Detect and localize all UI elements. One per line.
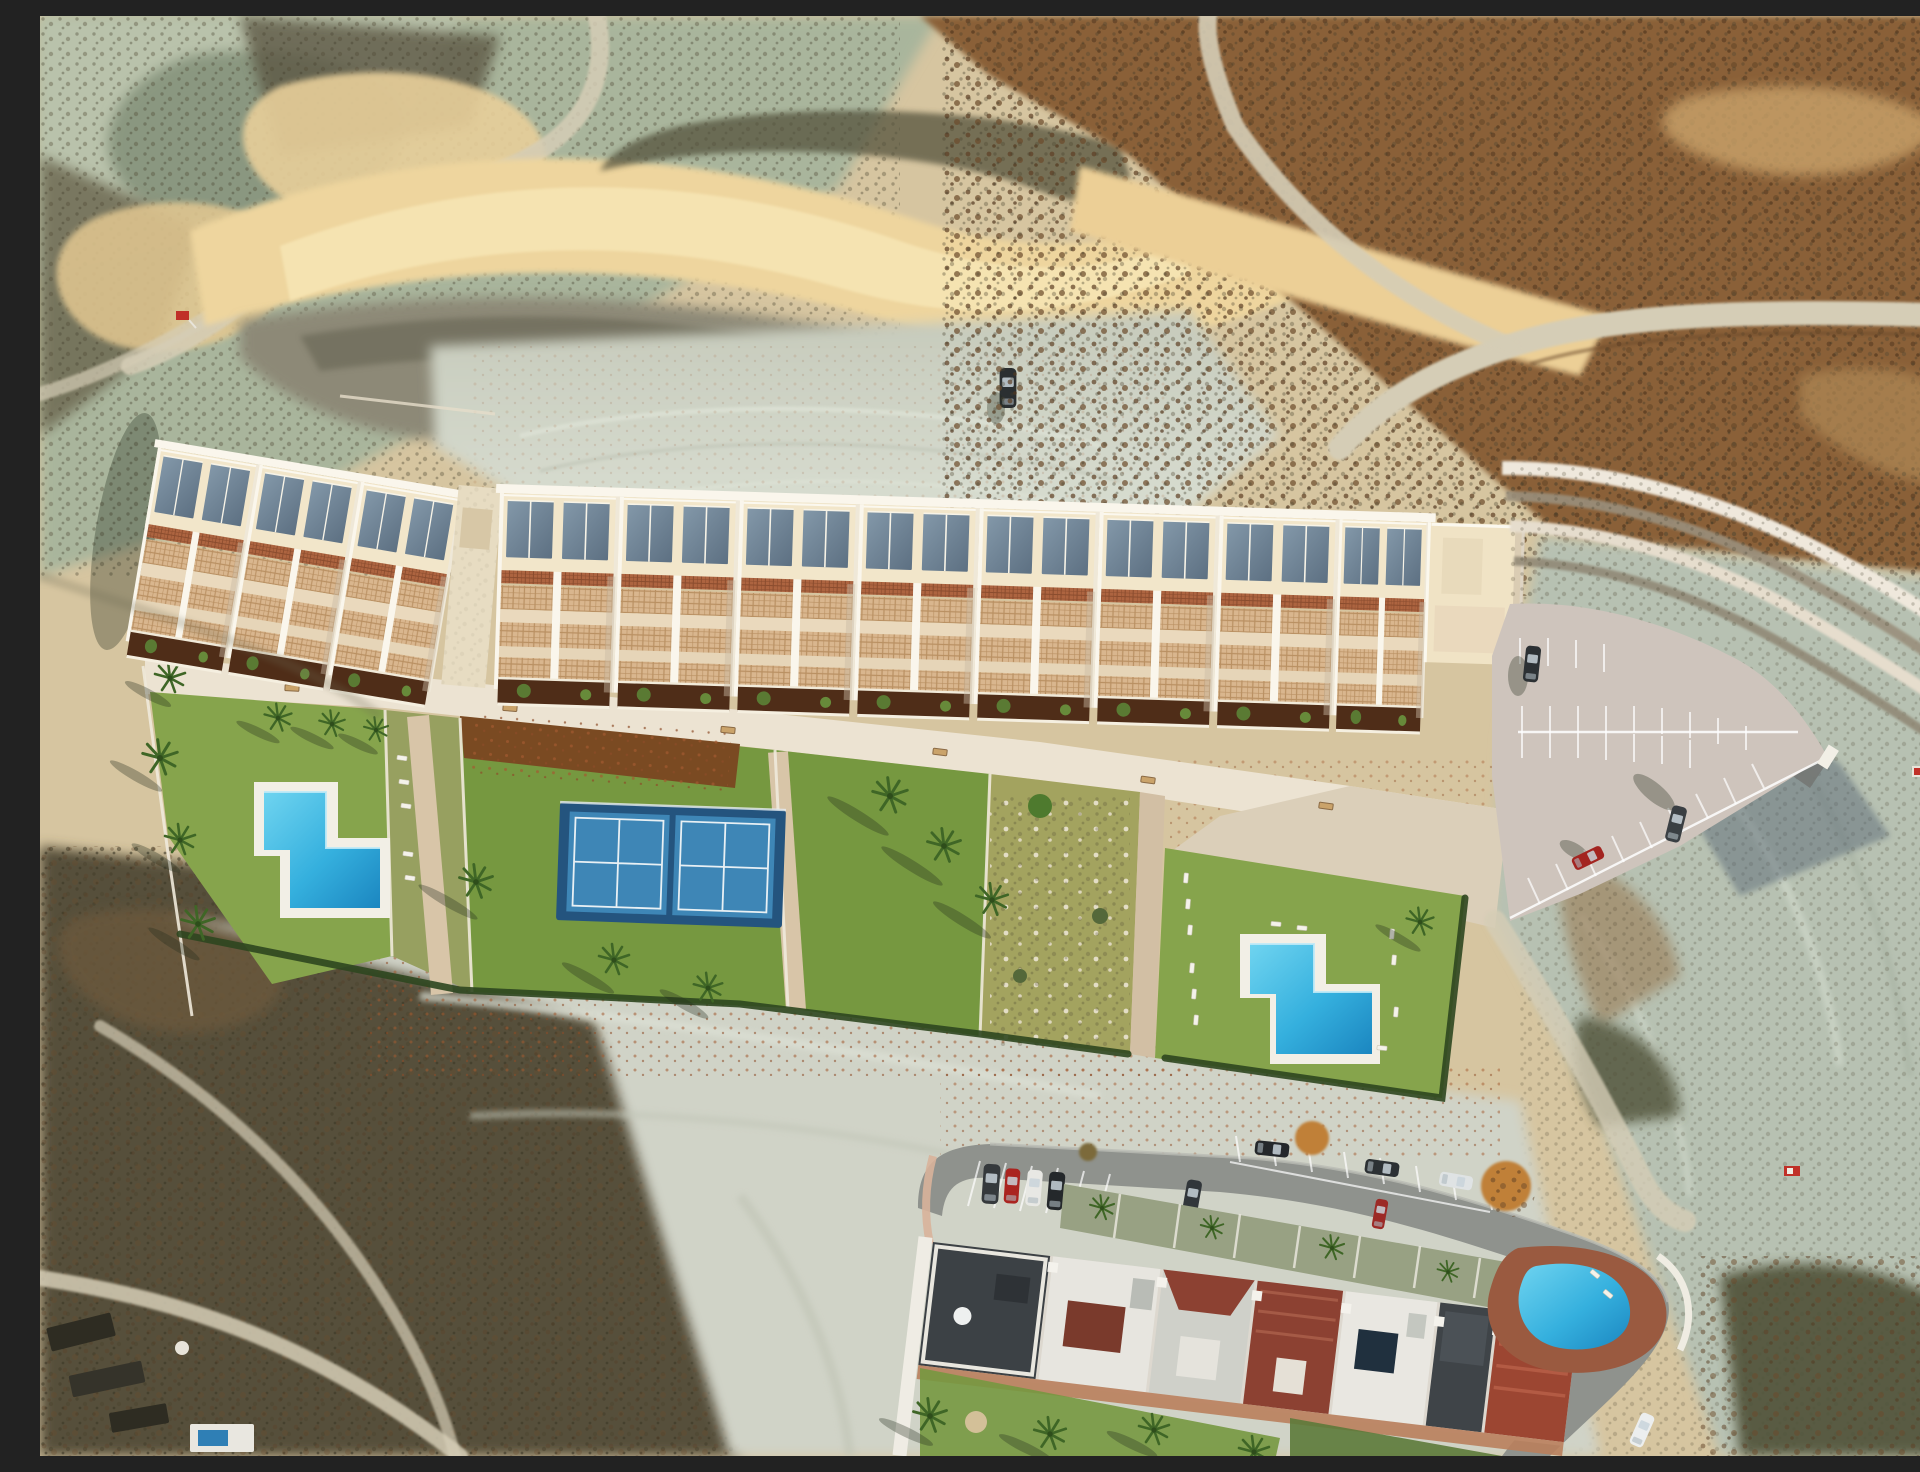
- solar-panel: [1354, 1329, 1398, 1373]
- sign-red: [1784, 1166, 1800, 1176]
- townhouse-module: [1213, 516, 1340, 731]
- townhouse-module: [1093, 512, 1220, 727]
- townhouse-module: [493, 493, 620, 708]
- bench: [1141, 776, 1156, 784]
- bench: [933, 748, 948, 756]
- townhouse-module: [1333, 519, 1430, 733]
- bench: [721, 726, 736, 733]
- townhouse-module: [973, 508, 1100, 723]
- bench: [1319, 802, 1334, 810]
- townhouse-module: [853, 504, 980, 719]
- sign-red: [1912, 766, 1920, 777]
- building-unit: [1038, 1256, 1160, 1392]
- parked-car: [1003, 1168, 1020, 1204]
- townhouse-main-row: [489, 484, 1525, 736]
- aerial-photo: Aerial render: white stepped townhouses …: [40, 16, 1920, 1456]
- building-unit: [918, 1242, 1050, 1379]
- parked-car: [1025, 1169, 1043, 1206]
- parked-car: [981, 1164, 1001, 1205]
- townhouse-module: [613, 497, 740, 712]
- townhouse-module: [733, 501, 860, 716]
- padel-courts: [556, 802, 786, 928]
- building-unit: [1149, 1269, 1255, 1403]
